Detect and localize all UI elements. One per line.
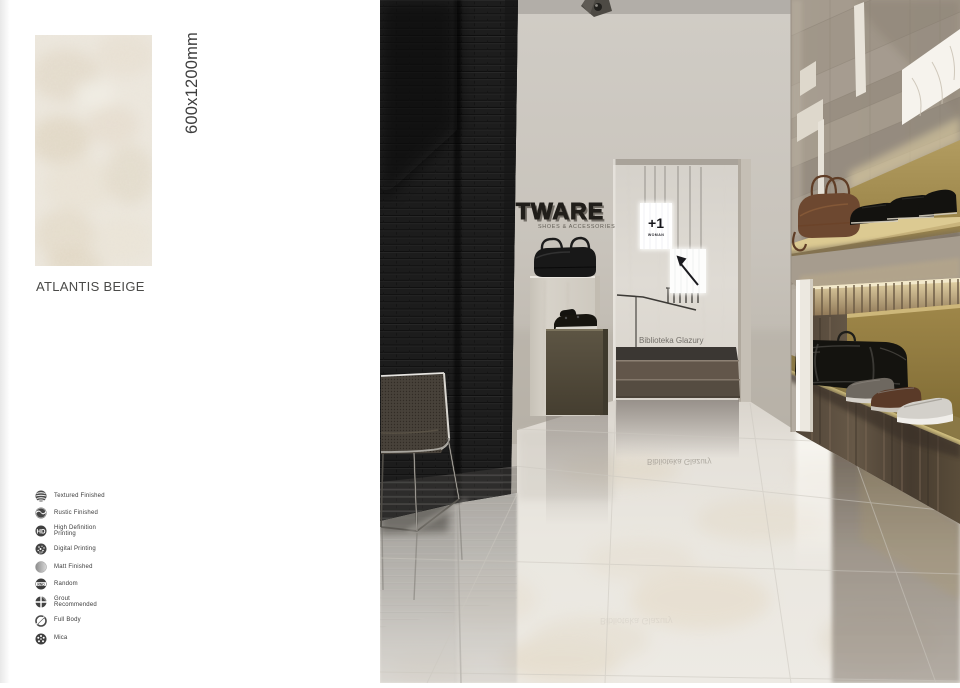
svg-text:Biblioteka Glazury: Biblioteka Glazury [639,336,703,345]
svg-text:Biblioteka Glazury: Biblioteka Glazury [647,457,711,466]
svg-text:+1: +1 [648,215,664,231]
svg-text:Biblioteka Glazury: Biblioteka Glazury [600,616,673,626]
svg-text:TWARE: TWARE [516,198,604,224]
svg-text:SHOES & ACCESSORIES: SHOES & ACCESSORIES [538,224,615,230]
svg-text:HD: HD [37,528,46,535]
svg-text:RND: RND [37,583,45,587]
svg-text:WOMAN: WOMAN [648,233,664,237]
svg-text:DP: DP [39,551,43,555]
